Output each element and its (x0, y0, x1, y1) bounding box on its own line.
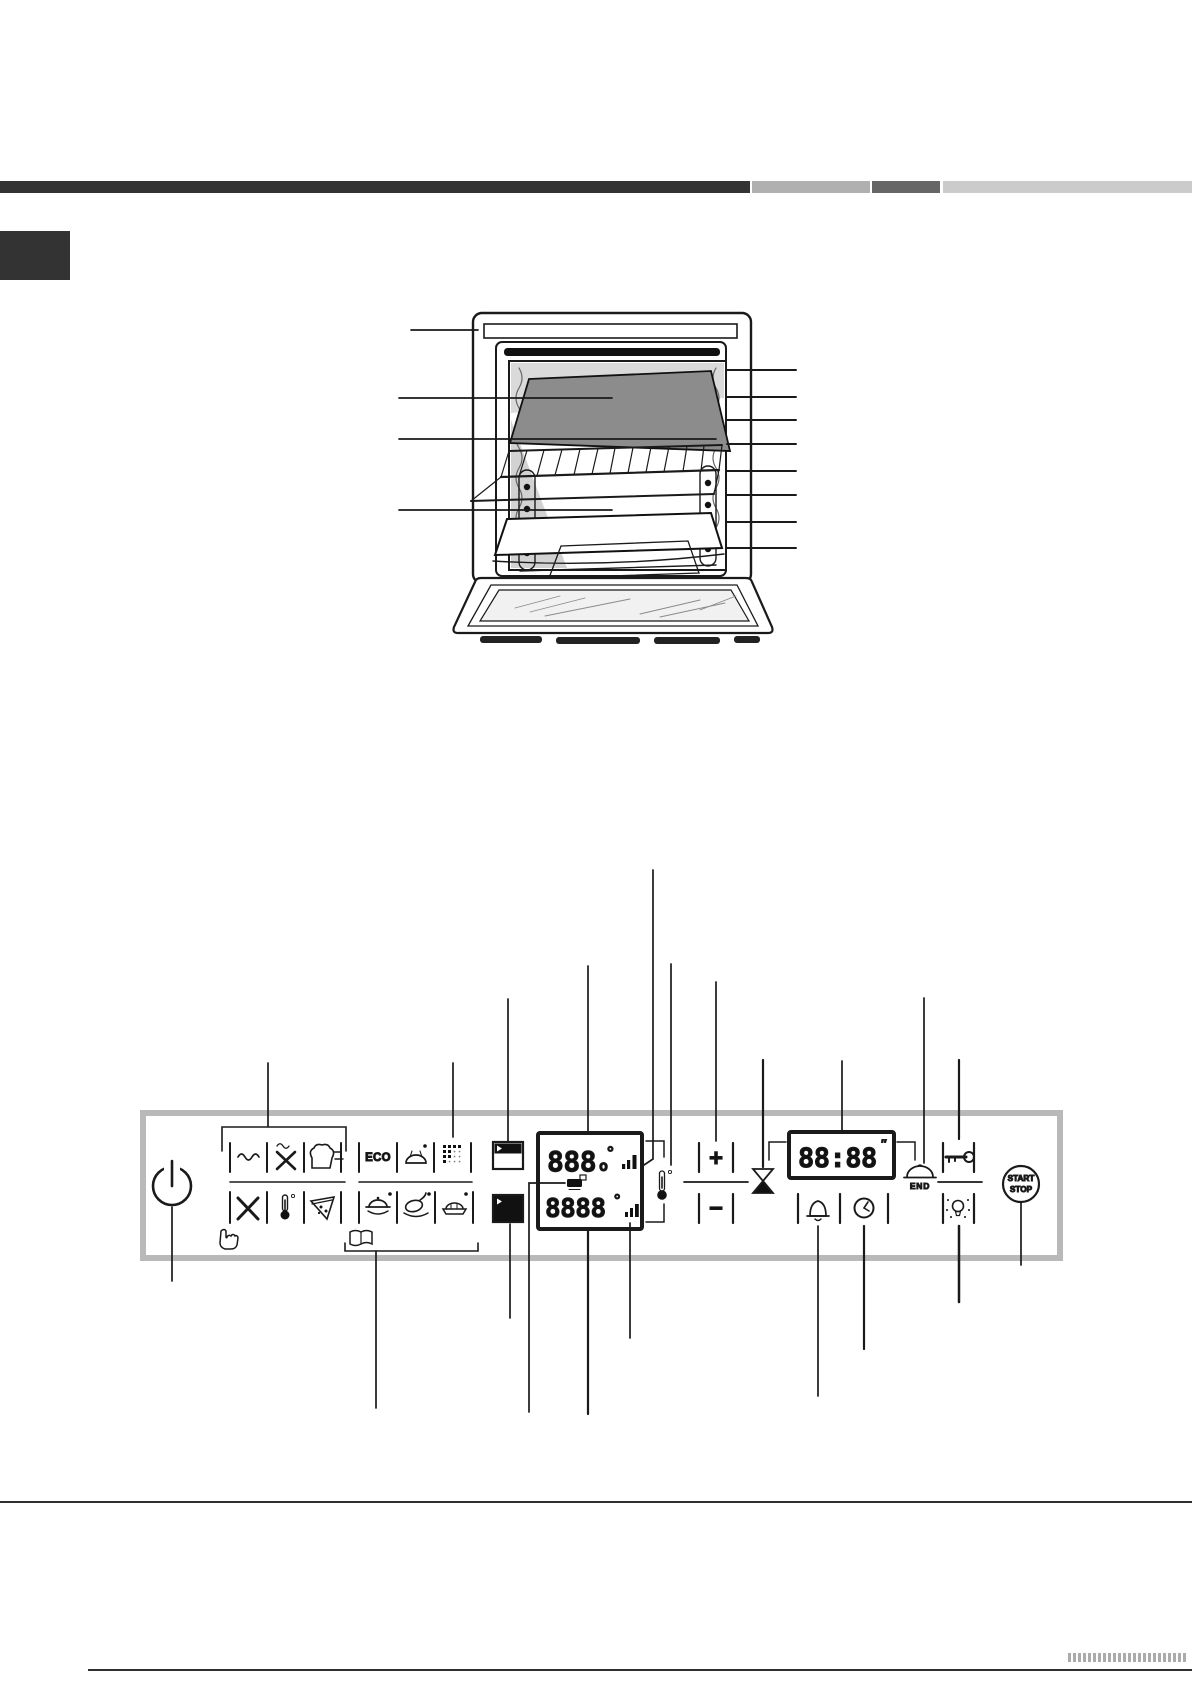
timer-digits: 88:88 (798, 1143, 877, 1174)
door-glass (480, 590, 749, 621)
timer-seconds-mark: ″ (881, 1137, 887, 1151)
manual-page: ECO (0, 0, 1192, 1685)
display-row1-digits: 888 (547, 1145, 596, 1178)
figures: ECO (0, 0, 1192, 1685)
footer-fine-print (1068, 1653, 1186, 1662)
display-row2-degree: ° (614, 1192, 620, 1209)
oven-diagram (399, 313, 796, 644)
plus-icon: + (709, 1145, 723, 1172)
main-display: 888 o ° 8888 ° (538, 1133, 642, 1229)
end-label: END (910, 1181, 930, 1191)
display-row2-digits: 8888 (545, 1194, 606, 1224)
display-contrast-dark-icon (493, 1195, 523, 1222)
timer-display: 88:88 ″ (789, 1132, 894, 1178)
start-label: START (1008, 1174, 1035, 1183)
footer-rule-upper (0, 1501, 1192, 1503)
door-bottom-trim (480, 636, 760, 644)
control-panel-diagram: ECO (143, 870, 1060, 1414)
display-contrast-light-icon (493, 1142, 523, 1169)
grill-element (504, 348, 720, 356)
footer-rule-lower (88, 1669, 1192, 1671)
eco-label: ECO (365, 1152, 391, 1164)
stop-label: STOP (1010, 1185, 1033, 1194)
display-row1-degree: ° (607, 1143, 614, 1162)
minus-icon: − (709, 1195, 723, 1222)
dripping-pan (495, 513, 722, 555)
